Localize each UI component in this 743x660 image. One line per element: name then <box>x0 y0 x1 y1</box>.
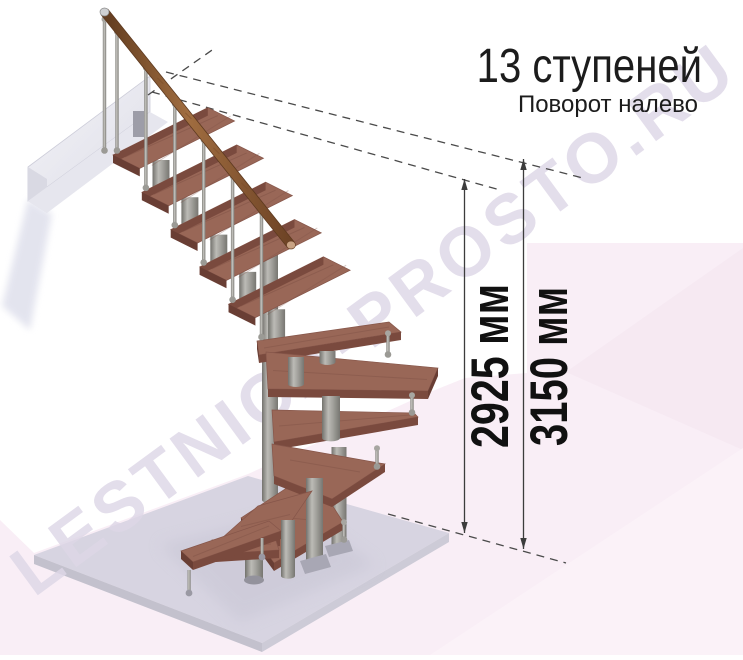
svg-text:3150 мм: 3150 мм <box>518 287 578 446</box>
svg-text:2925 мм: 2925 мм <box>461 284 520 448</box>
svg-text:13 ступеней: 13 ступеней <box>477 40 702 93</box>
svg-text:Поворот налево: Поворот налево <box>518 91 698 118</box>
